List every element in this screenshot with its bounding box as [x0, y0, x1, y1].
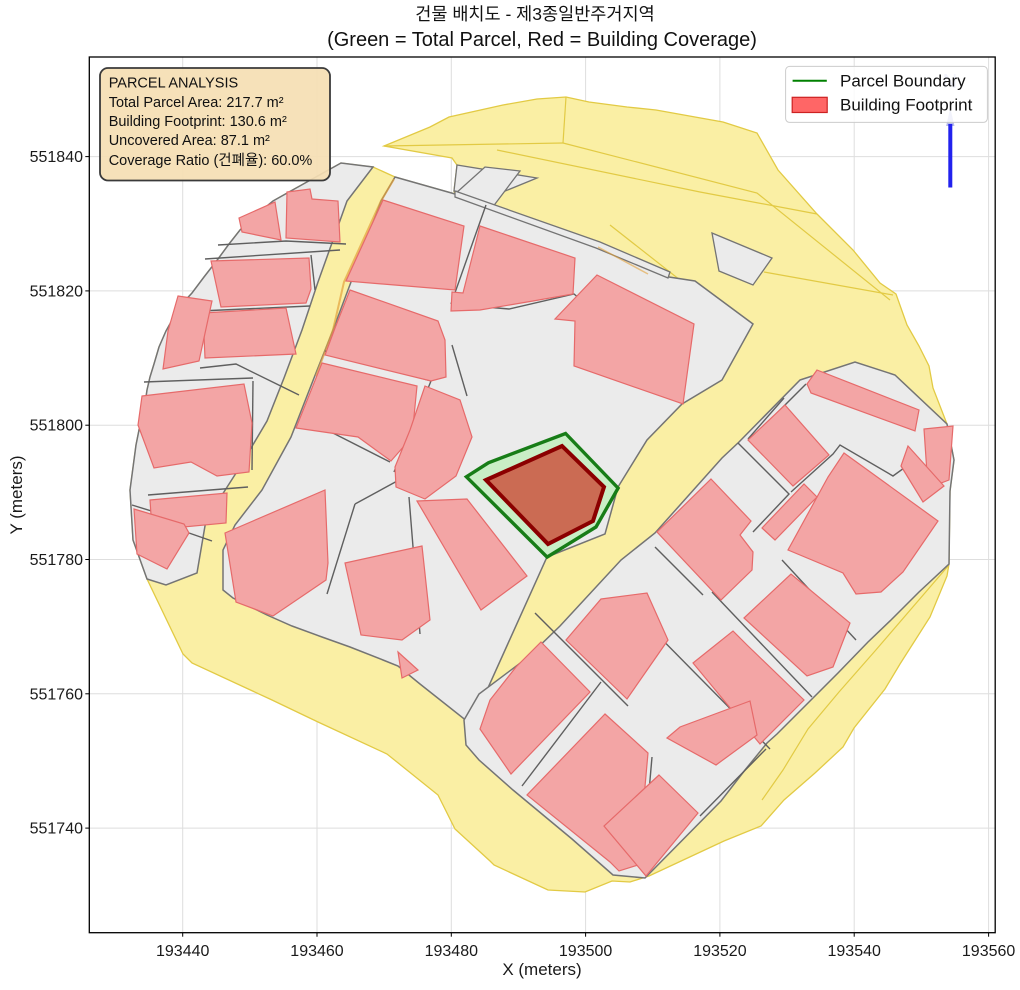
svg-text:551800: 551800: [30, 418, 83, 435]
svg-text:551820: 551820: [30, 283, 83, 300]
svg-text:Building Footprint: 130.6 m²: Building Footprint: 130.6 m²: [109, 114, 287, 130]
svg-text:551760: 551760: [30, 686, 83, 703]
svg-text:193520: 193520: [693, 943, 746, 960]
svg-text:X (meters): X (meters): [502, 960, 581, 979]
svg-text:Building Footprint: Building Footprint: [840, 96, 973, 115]
svg-text:(Green = Total Parcel, Red = B: (Green = Total Parcel, Red = Building Co…: [327, 29, 757, 51]
svg-text:Y (meters): Y (meters): [7, 455, 26, 534]
svg-text:193560: 193560: [962, 943, 1015, 960]
svg-text:Uncovered Area: 87.1 m²: Uncovered Area: 87.1 m²: [109, 133, 270, 149]
svg-text:건물 배치도 - 제3종일반주거지역: 건물 배치도 - 제3종일반주거지역: [415, 4, 654, 24]
svg-text:Coverage Ratio (건폐율): 60.0%: Coverage Ratio (건폐율): 60.0%: [109, 152, 313, 169]
svg-text:Parcel Boundary: Parcel Boundary: [840, 72, 966, 91]
svg-text:193460: 193460: [290, 943, 343, 960]
svg-text:193540: 193540: [828, 943, 881, 960]
svg-text:551740: 551740: [30, 821, 83, 838]
svg-text:551780: 551780: [30, 552, 83, 569]
svg-text:Total Parcel Area: 217.7 m²: Total Parcel Area: 217.7 m²: [109, 95, 284, 111]
svg-text:193500: 193500: [559, 943, 612, 960]
svg-text:PARCEL ANALYSIS: PARCEL ANALYSIS: [109, 76, 238, 92]
svg-text:551840: 551840: [30, 149, 83, 166]
svg-text:193440: 193440: [156, 943, 209, 960]
svg-text:193480: 193480: [425, 943, 478, 960]
